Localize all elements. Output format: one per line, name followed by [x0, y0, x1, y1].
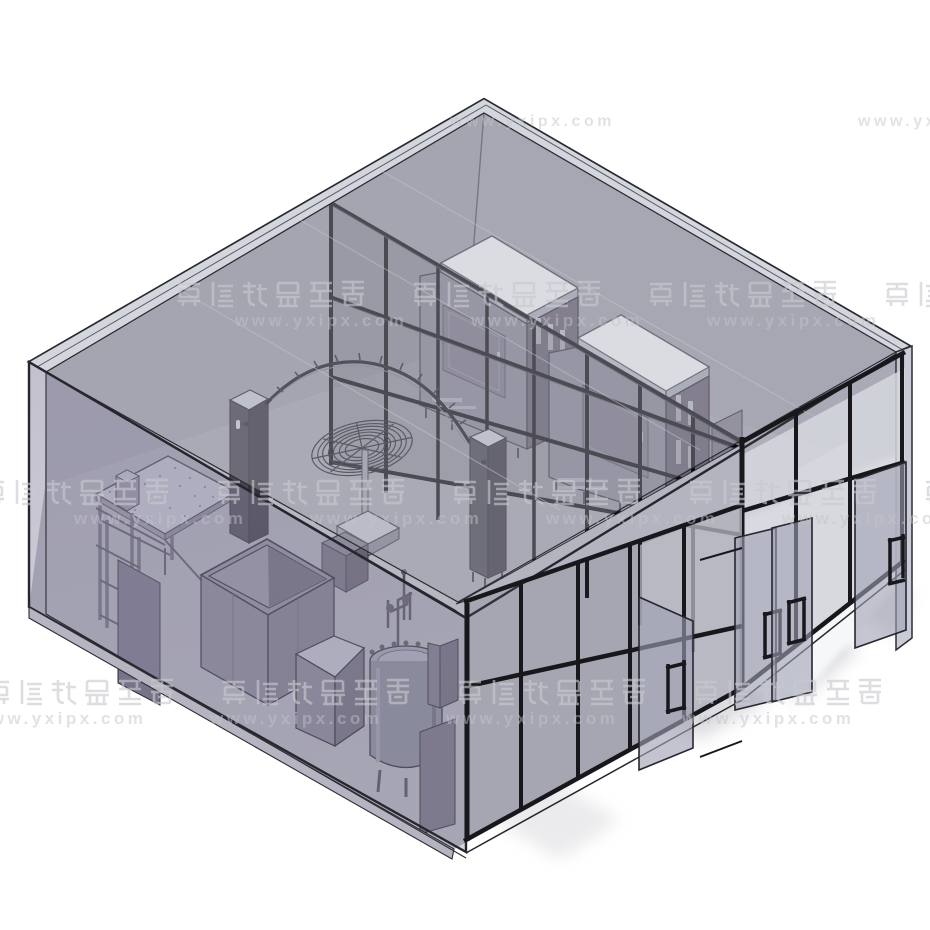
svg-text:www.yxipx.com: www.yxipx.com	[681, 709, 854, 728]
svg-text:www.yxipx.com: www.yxipx.com	[449, 113, 615, 130]
svg-text:www.yxipx.com: www.yxipx.com	[445, 709, 618, 728]
svg-text:www.yxipx.com: www.yxipx.com	[781, 509, 930, 528]
svg-text:www.yxipx.com: www.yxipx.com	[545, 509, 718, 528]
svg-text:www.yxipx.com: www.yxipx.com	[209, 709, 382, 728]
svg-text:www.yxipx.com: www.yxipx.com	[706, 311, 879, 330]
svg-text:www.yxipx.com: www.yxipx.com	[470, 311, 643, 330]
svg-text:www.yxipx.com: www.yxipx.com	[857, 113, 930, 130]
svg-text:www.yxipx.com: www.yxipx.com	[73, 509, 246, 528]
svg-text:www.yxipx.com: www.yxipx.com	[234, 311, 407, 330]
svg-text:www.yxipx.com: www.yxipx.com	[309, 509, 482, 528]
svg-text:www.yxipx.com: www.yxipx.com	[0, 709, 146, 728]
